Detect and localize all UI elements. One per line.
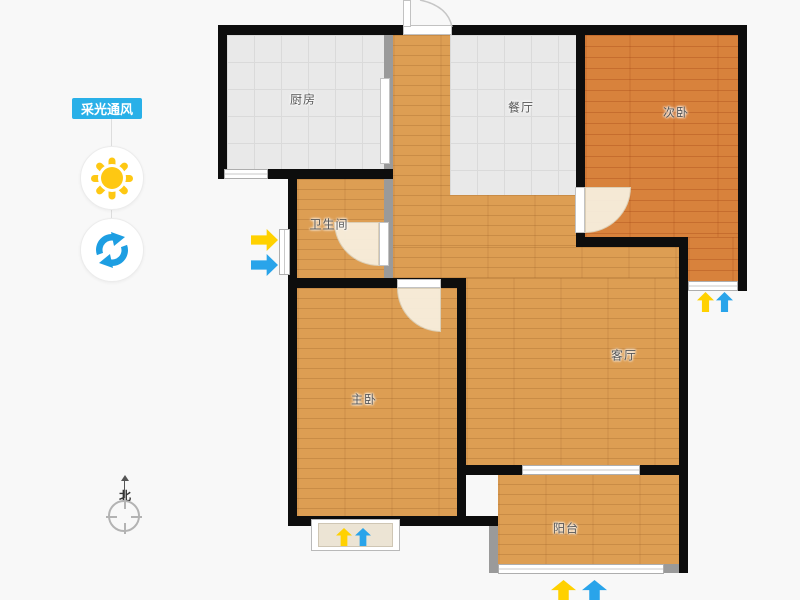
hallway-floor bbox=[393, 195, 576, 247]
refresh-icon bbox=[94, 232, 130, 268]
room-label-balcony: 阳台 bbox=[553, 520, 579, 537]
room-label-master: 主卧 bbox=[351, 391, 377, 408]
compass-icon bbox=[108, 500, 140, 532]
daylight-arrow-balcony bbox=[551, 580, 576, 600]
bedroom2-window bbox=[688, 281, 738, 291]
wall-top-right bbox=[452, 25, 747, 35]
compass-north-arrow-icon bbox=[121, 475, 129, 481]
wall-master-left bbox=[288, 278, 297, 526]
balcony-left-wall bbox=[489, 520, 498, 573]
balcony-window bbox=[498, 564, 664, 574]
ventilation-arrow-bathroom bbox=[251, 254, 278, 276]
sun-button[interactable] bbox=[80, 146, 144, 210]
wall-bedroom2-right bbox=[738, 25, 747, 291]
entry-hall-floor bbox=[393, 35, 450, 195]
daylight-ventilation-tag[interactable]: 采光通风 bbox=[72, 98, 142, 119]
wall-top-left bbox=[218, 25, 403, 35]
floorplan-app: 采光通风 北 bbox=[0, 0, 800, 600]
room-label-bedroom2: 次卧 bbox=[663, 104, 689, 121]
wall-bedroom2-bottom bbox=[576, 237, 688, 247]
bathroom-window bbox=[279, 229, 290, 275]
sun-icon bbox=[81, 147, 143, 209]
room-label-living: 客厅 bbox=[611, 347, 637, 364]
ventilation-arrow-bedroom2 bbox=[716, 292, 733, 312]
wall-master-right bbox=[457, 278, 466, 526]
wall-kitchen-left bbox=[218, 25, 227, 179]
kitchen-window bbox=[224, 169, 268, 179]
room-balcony-floor bbox=[498, 474, 679, 564]
master-bay-window-inner bbox=[318, 523, 393, 547]
daylight-arrow-bathroom bbox=[251, 229, 278, 251]
refresh-button[interactable] bbox=[80, 218, 144, 282]
room-label-bathroom: 卫生间 bbox=[309, 216, 348, 233]
room-label-kitchen: 厨房 bbox=[290, 91, 316, 108]
entry-door-swing-arc bbox=[398, 0, 462, 30]
master-door-sill bbox=[397, 279, 441, 288]
balcony-wall-stub bbox=[663, 564, 679, 573]
daylight-arrow-bedroom2 bbox=[697, 292, 714, 312]
kitchen-sliding-door bbox=[380, 78, 390, 164]
room-bedroom2-floor-lower bbox=[688, 237, 738, 281]
living-balcony-window bbox=[522, 465, 640, 475]
wall-bedroom2-left-upper bbox=[576, 25, 585, 188]
bathroom-door-sill bbox=[379, 222, 389, 266]
bedroom2-door-sill bbox=[575, 187, 585, 233]
ventilation-arrow-balcony bbox=[582, 580, 607, 600]
room-label-dining: 餐厅 bbox=[508, 99, 534, 116]
room-living-floor bbox=[466, 278, 679, 465]
hallway-floor-2 bbox=[393, 247, 679, 278]
